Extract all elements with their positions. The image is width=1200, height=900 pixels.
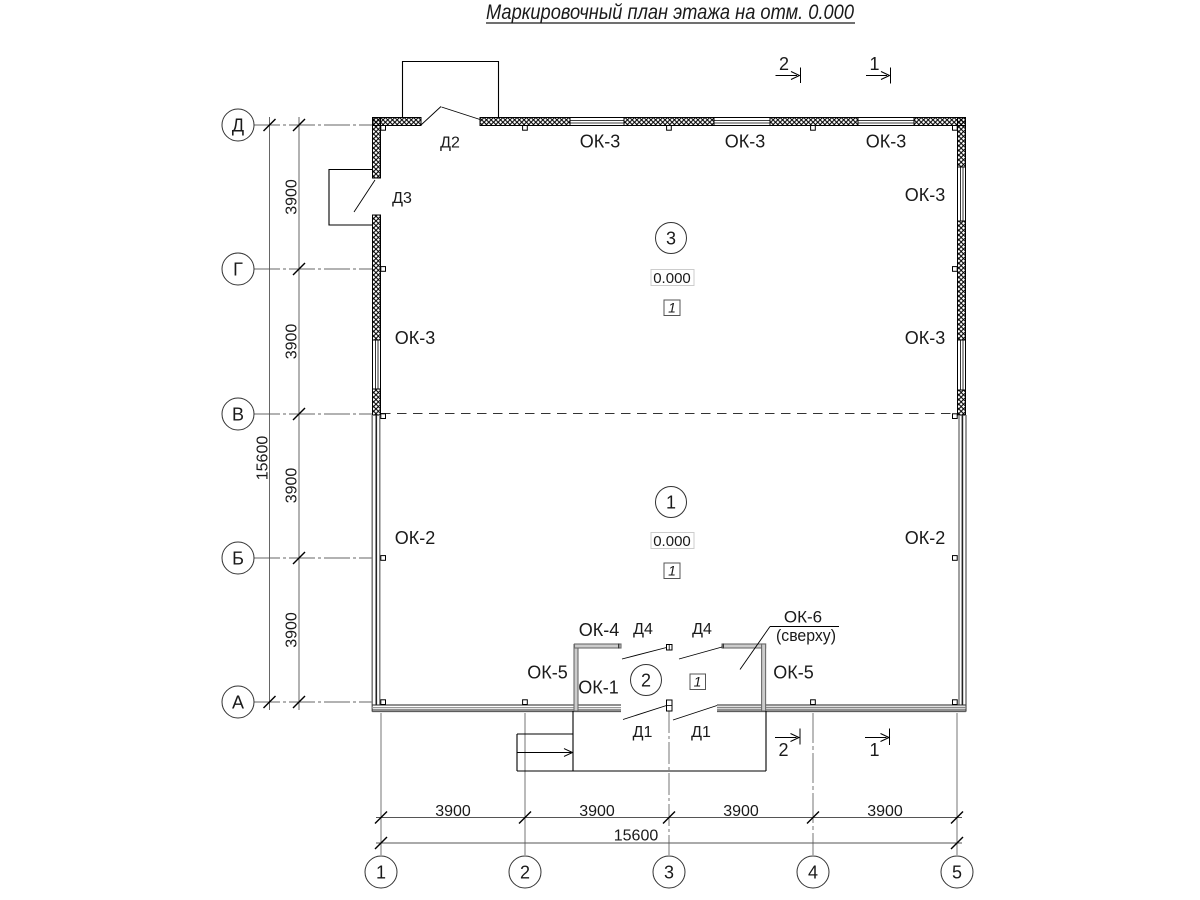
svg-text:1: 1 — [694, 674, 702, 690]
svg-text:3900: 3900 — [867, 803, 903, 820]
svg-text:1: 1 — [376, 863, 386, 883]
svg-text:ОК-2: ОК-2 — [905, 528, 946, 548]
svg-text:1: 1 — [666, 493, 676, 513]
svg-text:15600: 15600 — [255, 436, 272, 481]
svg-text:ОК-4: ОК-4 — [579, 620, 620, 640]
svg-text:3: 3 — [666, 229, 676, 249]
svg-text:А: А — [232, 693, 244, 713]
svg-text:1: 1 — [869, 54, 879, 74]
svg-text:ОК-6: ОК-6 — [784, 608, 822, 627]
svg-text:ОК-3: ОК-3 — [866, 132, 907, 152]
svg-text:ОК-3: ОК-3 — [395, 328, 436, 348]
svg-text:ОК-5: ОК-5 — [527, 663, 568, 683]
svg-text:Б: Б — [232, 549, 244, 569]
svg-text:Д1: Д1 — [633, 724, 653, 741]
svg-text:2: 2 — [520, 863, 530, 883]
svg-text:Г: Г — [233, 260, 243, 280]
svg-text:ОК-5: ОК-5 — [773, 663, 814, 683]
svg-text:Д4: Д4 — [633, 621, 653, 638]
svg-text:1: 1 — [668, 300, 676, 316]
svg-text:3900: 3900 — [579, 803, 615, 820]
svg-text:2: 2 — [778, 740, 788, 760]
svg-text:1: 1 — [869, 740, 879, 760]
svg-text:0.000: 0.000 — [653, 270, 691, 287]
svg-text:2: 2 — [779, 54, 789, 74]
svg-text:ОК-2: ОК-2 — [395, 528, 436, 548]
svg-text:ОК-3: ОК-3 — [905, 185, 946, 205]
svg-text:Маркировочный план этажа на от: Маркировочный план этажа на отм. 0.000 — [486, 1, 854, 24]
svg-text:1: 1 — [668, 563, 676, 579]
svg-text:5: 5 — [952, 863, 962, 883]
svg-text:Д3: Д3 — [392, 190, 412, 207]
svg-text:3900: 3900 — [284, 324, 301, 360]
svg-text:3: 3 — [664, 863, 674, 883]
svg-text:Д1: Д1 — [691, 724, 711, 741]
svg-text:Д4: Д4 — [692, 621, 712, 638]
svg-text:3900: 3900 — [723, 803, 759, 820]
svg-text:2: 2 — [641, 671, 651, 691]
svg-text:15600: 15600 — [614, 828, 659, 845]
svg-text:ОК-3: ОК-3 — [580, 132, 621, 152]
svg-text:0.000: 0.000 — [653, 533, 691, 550]
svg-text:ОК-3: ОК-3 — [725, 132, 766, 152]
svg-text:3900: 3900 — [284, 468, 301, 504]
svg-text:3900: 3900 — [284, 179, 301, 215]
svg-text:ОК-3: ОК-3 — [905, 328, 946, 348]
svg-text:3900: 3900 — [435, 803, 471, 820]
svg-text:Д2: Д2 — [440, 134, 460, 151]
svg-text:(сверху): (сверху) — [776, 626, 836, 645]
svg-text:ОК-1: ОК-1 — [578, 678, 619, 698]
svg-text:4: 4 — [808, 863, 818, 883]
svg-text:Д: Д — [232, 116, 244, 136]
svg-text:В: В — [232, 405, 244, 425]
svg-text:3900: 3900 — [284, 612, 301, 648]
